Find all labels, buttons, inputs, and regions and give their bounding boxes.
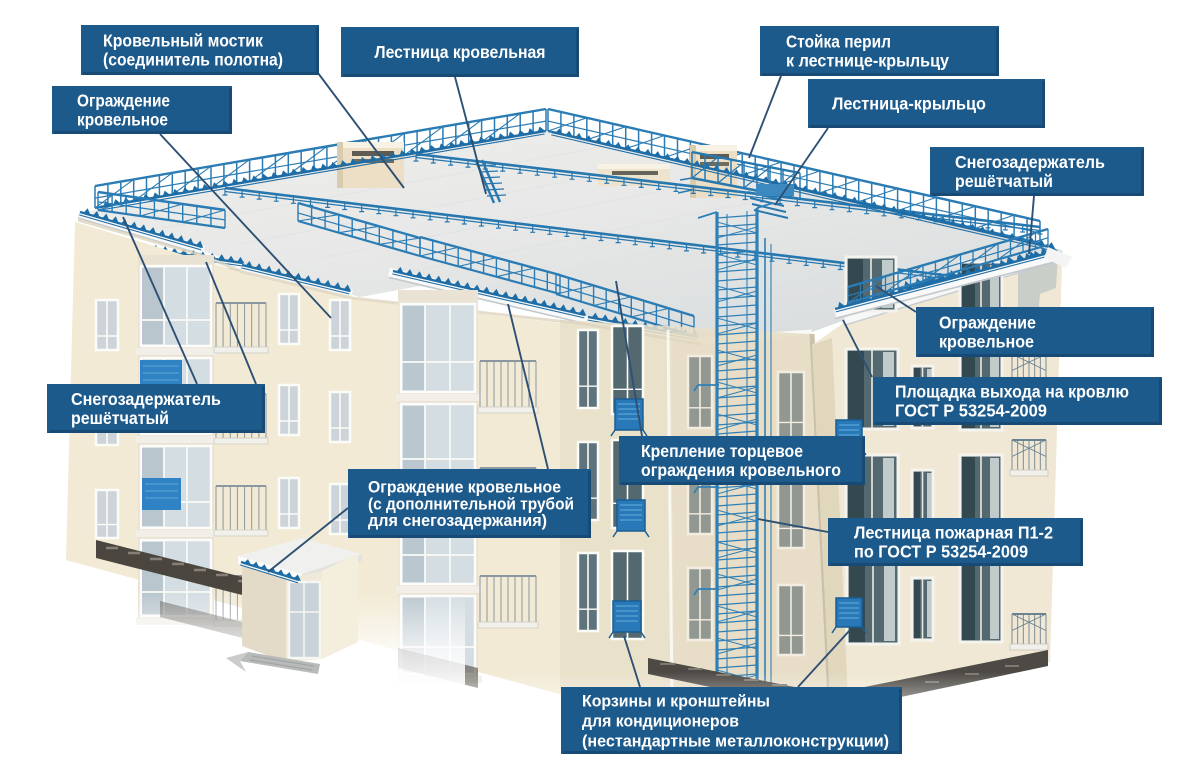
svg-text:для кондиционеров: для кондиционеров: [582, 712, 739, 731]
svg-text:Снегозадержатель: Снегозадержатель: [955, 152, 1105, 172]
svg-text:Ограждение: Ограждение: [77, 91, 170, 111]
svg-text:кровельное: кровельное: [77, 110, 168, 130]
svg-text:для снегозадержания): для снегозадержания): [368, 512, 547, 530]
svg-text:Лестница кровельная: Лестница кровельная: [375, 42, 546, 62]
svg-text:Ограждение кровельное: Ограждение кровельное: [368, 479, 561, 497]
svg-text:Снегозадержатель: Снегозадержатель: [71, 389, 221, 409]
svg-text:Корзины и кронштейны: Корзины и кронштейны: [582, 692, 770, 711]
svg-text:(нестандартные металлоконструк: (нестандартные металлоконструкции): [582, 732, 889, 751]
svg-text:ограждения кровельного: ограждения кровельного: [641, 460, 841, 480]
svg-text:Кровельный мостик: Кровельный мостик: [103, 31, 263, 51]
svg-text:Лестница-крыльцо: Лестница-крыльцо: [832, 94, 986, 114]
svg-text:кровельное: кровельное: [939, 332, 1034, 352]
svg-text:решётчатый: решётчатый: [955, 171, 1053, 191]
svg-text:ГОСТ Р 53254-2009: ГОСТ Р 53254-2009: [895, 401, 1047, 421]
svg-text:Лестница пожарная П1-2: Лестница пожарная П1-2: [854, 523, 1053, 543]
svg-text:Площадка выхода на кровлю: Площадка выхода на кровлю: [895, 382, 1129, 402]
svg-text:Стойка перил: Стойка перил: [786, 32, 891, 52]
svg-text:решётчатый: решётчатый: [71, 408, 169, 428]
svg-text:(соединитель полотна): (соединитель полотна): [103, 50, 283, 70]
svg-text:по ГОСТ Р 53254-2009: по ГОСТ Р 53254-2009: [854, 542, 1028, 562]
svg-text:(с дополнительной трубой: (с дополнительной трубой: [368, 495, 574, 513]
svg-text:к лестнице-крыльцу: к лестнице-крыльцу: [786, 51, 949, 71]
svg-text:Крепление торцевое: Крепление торцевое: [641, 441, 803, 461]
svg-text:Ограждение: Ограждение: [939, 313, 1036, 333]
